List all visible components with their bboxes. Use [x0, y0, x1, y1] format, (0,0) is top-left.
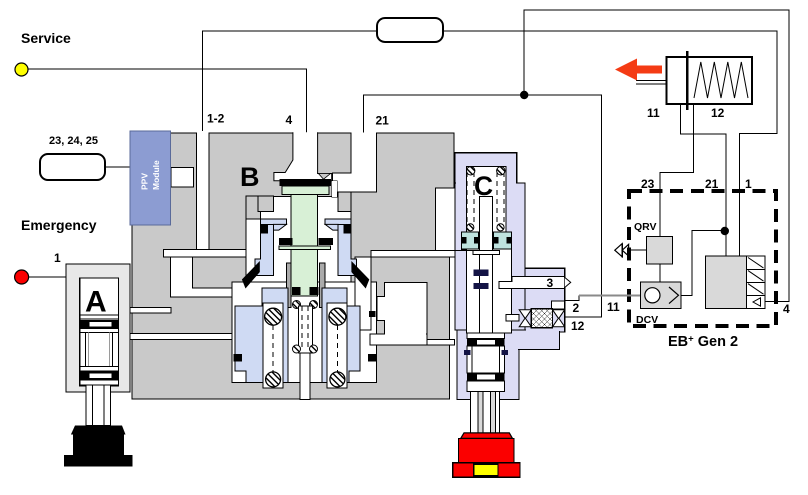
svg-text:1: 1 [54, 251, 61, 265]
svg-text:3: 3 [547, 276, 554, 290]
svg-text:1: 1 [745, 177, 752, 191]
svg-text:Service: Service [21, 30, 71, 46]
svg-text:A: A [85, 286, 107, 319]
svg-text:21: 21 [705, 177, 719, 191]
svg-text:Emergency: Emergency [21, 217, 97, 233]
svg-text:12: 12 [711, 106, 725, 120]
svg-text:21: 21 [376, 114, 390, 128]
svg-text:23: 23 [641, 177, 655, 191]
svg-text:B: B [240, 162, 260, 192]
svg-text:4: 4 [783, 302, 790, 316]
svg-text:EB+ Gen 2: EB+ Gen 2 [668, 334, 738, 351]
svg-text:4: 4 [286, 113, 293, 127]
svg-text:DCV: DCV [636, 314, 658, 326]
svg-text:QRV: QRV [634, 221, 657, 233]
svg-text:23, 24, 25: 23, 24, 25 [49, 135, 98, 147]
svg-text:12: 12 [571, 319, 585, 333]
svg-text:11: 11 [607, 300, 620, 314]
svg-text:2: 2 [573, 301, 580, 315]
svg-text:Module: Module [151, 160, 161, 190]
svg-text:PPV: PPV [140, 173, 150, 190]
svg-text:11: 11 [647, 106, 660, 120]
svg-text:1-2: 1-2 [207, 112, 225, 126]
